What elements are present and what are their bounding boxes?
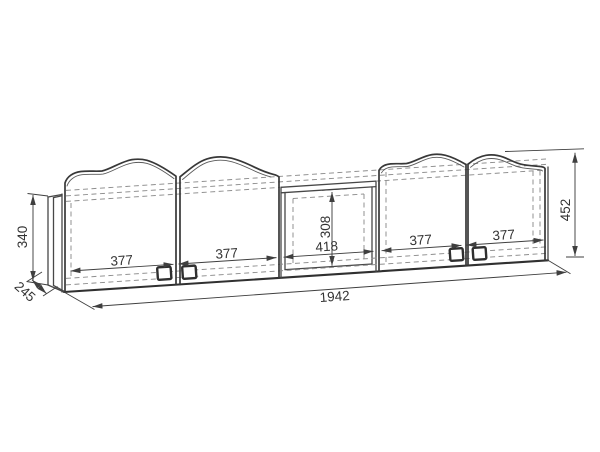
- furniture-dimension-drawing: 340 245 377 377 418 308 377 377 452 1942: [0, 0, 600, 452]
- handle-door-4: [473, 247, 487, 260]
- label-niche-height: 308: [318, 216, 333, 239]
- technical-drawing-canvas: 340 245 377 377 418 308 377 377 452 1942: [0, 0, 600, 452]
- label-overall-height: 452: [558, 199, 573, 222]
- label-overall-width: 1942: [319, 288, 350, 305]
- handle-door-3: [450, 248, 464, 261]
- label-niche-width: 418: [315, 238, 338, 254]
- label-door4-width: 377: [492, 227, 515, 243]
- handle-door-2: [182, 266, 196, 279]
- label-carcass-height: 340: [15, 226, 30, 249]
- label-door2-width: 377: [215, 245, 238, 261]
- cabinet-carcass: [48, 167, 548, 292]
- handle-door-1: [157, 267, 171, 280]
- label-door3-width: 377: [409, 232, 432, 248]
- label-door1-width: 377: [110, 252, 133, 268]
